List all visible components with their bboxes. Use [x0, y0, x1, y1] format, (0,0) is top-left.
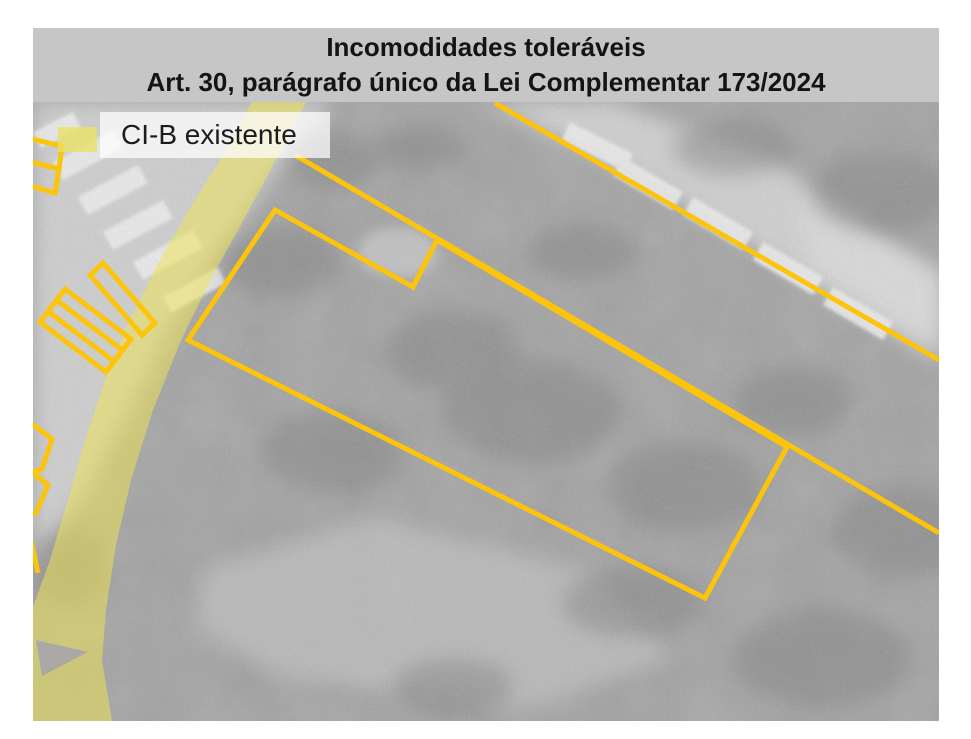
- aerial-map: CI-B existente: [33, 102, 939, 721]
- legend-label: CI-B existente: [100, 112, 330, 158]
- map-title-line2: Art. 30, parágrafo único da Lei Compleme…: [146, 65, 825, 100]
- title-bar: Incomodidades toleráveis Art. 30, parágr…: [33, 28, 939, 102]
- terrain-texture: [33, 102, 939, 721]
- legend: CI-B existente: [100, 112, 330, 158]
- aerial-imagery: [33, 102, 939, 721]
- map-title-line1: Incomodidades toleráveis: [326, 30, 645, 65]
- page: { "header": { "line1": "Incomodidades to…: [0, 0, 971, 739]
- legend-swatch-ci-b: [58, 127, 97, 152]
